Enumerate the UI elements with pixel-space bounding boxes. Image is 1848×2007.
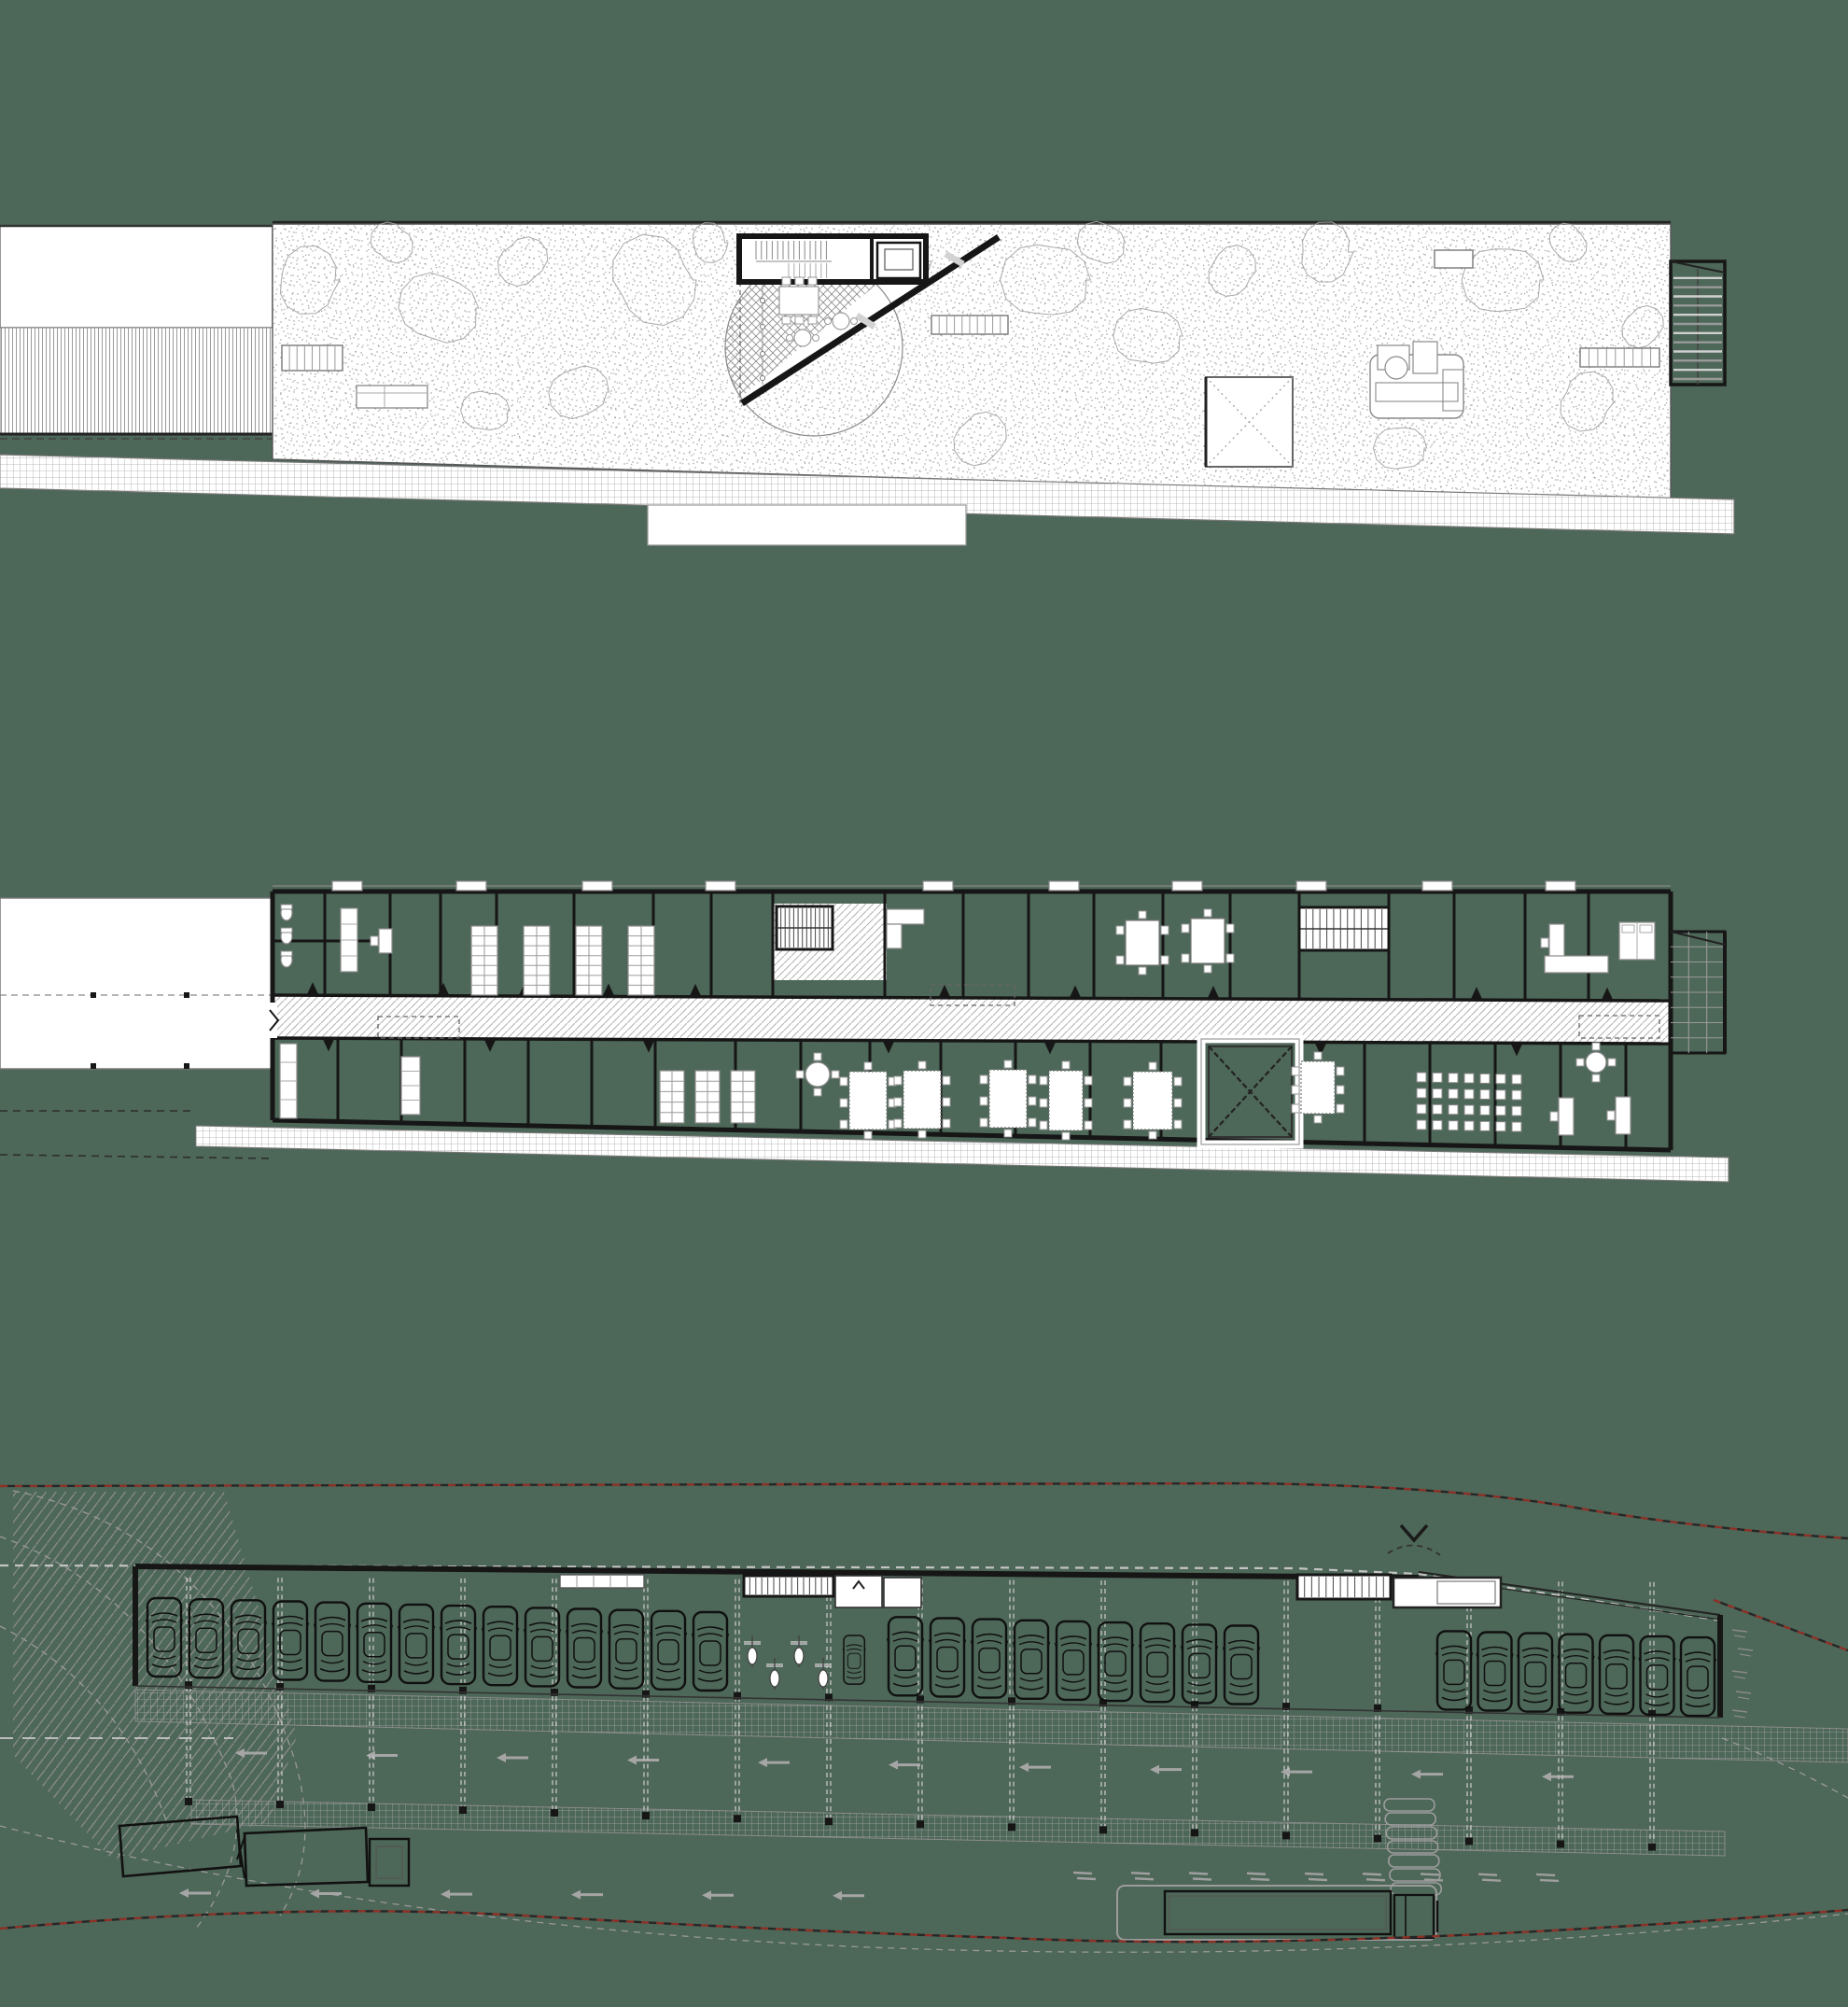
drive-arrows <box>179 1888 864 1901</box>
upper-floor-plan <box>0 881 1729 1182</box>
small-car <box>843 1635 865 1684</box>
car <box>357 1604 393 1682</box>
furniture-table8 <box>1124 1062 1182 1139</box>
drive-arrows <box>235 1748 1574 1781</box>
secondary-stair <box>1299 907 1389 950</box>
plans-drawing <box>0 0 1848 2007</box>
car <box>1477 1633 1513 1711</box>
balcony-deck <box>1671 932 1725 1053</box>
furniture-bed <box>1619 922 1655 960</box>
parking-stair <box>1297 1575 1391 1599</box>
equipment-room <box>884 1578 921 1607</box>
property-boundary <box>0 1910 1848 1942</box>
car <box>1140 1623 1176 1702</box>
car <box>399 1605 435 1683</box>
furniture-round <box>796 1053 839 1096</box>
furniture-round <box>1576 1043 1616 1082</box>
furniture-wardrobe <box>401 1057 420 1115</box>
motorcycle <box>791 1635 807 1667</box>
furniture-wardrobe <box>280 1044 297 1118</box>
roof-hatch <box>357 386 427 408</box>
contour-line <box>0 1155 273 1158</box>
lower-sidewalk-band <box>191 1800 1725 1856</box>
skylight-strip <box>560 1575 644 1588</box>
vestibule <box>835 1576 882 1607</box>
neighbor-building-roof <box>0 226 273 439</box>
furniture-cotgrid <box>628 926 654 995</box>
car <box>315 1603 351 1681</box>
car <box>1558 1635 1594 1713</box>
car <box>483 1607 519 1685</box>
furniture-table8 <box>840 1062 896 1139</box>
neighbor-building <box>0 898 273 1069</box>
patio-void <box>1201 1039 1299 1144</box>
property-boundary <box>0 1483 1848 1538</box>
motorcycle <box>766 1658 783 1690</box>
car <box>609 1610 645 1689</box>
furniture-shelfgrid <box>731 1071 755 1123</box>
stair-penthouse <box>739 236 926 282</box>
car <box>930 1619 966 1697</box>
furniture-toilets <box>281 905 292 967</box>
furniture-desk <box>1607 1097 1631 1134</box>
sidewalk-band <box>135 1690 1848 1762</box>
entry-room <box>1393 1578 1501 1607</box>
car <box>1599 1635 1635 1714</box>
car <box>567 1609 603 1688</box>
dash-marks <box>1073 1873 1559 1881</box>
furniture-table6 <box>1116 911 1169 975</box>
car <box>1056 1621 1092 1700</box>
parking-level-plan <box>0 1483 1848 1952</box>
roof-box <box>1435 250 1473 268</box>
motorcycle <box>744 1635 761 1667</box>
architectural-sheet <box>0 0 1848 2007</box>
car <box>693 1612 729 1691</box>
car <box>1639 1636 1675 1715</box>
furniture-wardrobe <box>341 908 357 972</box>
skylight-strip <box>1580 348 1659 367</box>
roof-site-plan <box>0 221 1734 545</box>
furniture-desk <box>1550 1098 1574 1135</box>
furniture-table6 <box>1182 909 1234 973</box>
furniture-shelfgrid <box>695 1071 720 1123</box>
car <box>1518 1634 1554 1712</box>
car <box>1224 1626 1260 1705</box>
furniture-cotgrid <box>524 926 550 995</box>
car <box>1680 1637 1716 1716</box>
property-boundary <box>0 1910 1848 1942</box>
corridor <box>273 995 1671 1044</box>
furniture-chairgrid <box>1417 1073 1521 1131</box>
skylight-square <box>1206 377 1293 467</box>
car <box>441 1606 477 1684</box>
skylight-strip <box>282 345 343 371</box>
entry-chevron-icon <box>1388 1525 1440 1555</box>
furniture-cotgrid <box>471 926 497 995</box>
car <box>1014 1621 1050 1699</box>
car <box>972 1620 1008 1698</box>
property-boundary <box>0 1483 1848 1538</box>
furniture-desk <box>371 929 392 953</box>
motorcycles <box>744 1635 832 1690</box>
parking-stair <box>744 1576 833 1596</box>
fire-escape-stair <box>1671 261 1725 385</box>
furniture-counter <box>887 924 902 948</box>
furniture-table8 <box>1040 1061 1092 1140</box>
furniture-counter <box>887 909 924 924</box>
car <box>651 1611 687 1690</box>
furniture-shelfgrid <box>660 1071 684 1123</box>
dimension-marks <box>1732 1630 1753 1718</box>
furniture-cotgrid <box>576 926 602 995</box>
car <box>1098 1622 1134 1701</box>
lower-canopy <box>648 505 966 545</box>
furniture-table8 <box>980 1060 1036 1137</box>
main-stair <box>777 906 833 949</box>
furniture-counter <box>1545 956 1608 973</box>
motorcycle <box>815 1658 832 1690</box>
car <box>1182 1624 1218 1703</box>
truck <box>1117 1886 1437 1940</box>
car <box>525 1607 561 1686</box>
roof-bench <box>931 316 1008 334</box>
